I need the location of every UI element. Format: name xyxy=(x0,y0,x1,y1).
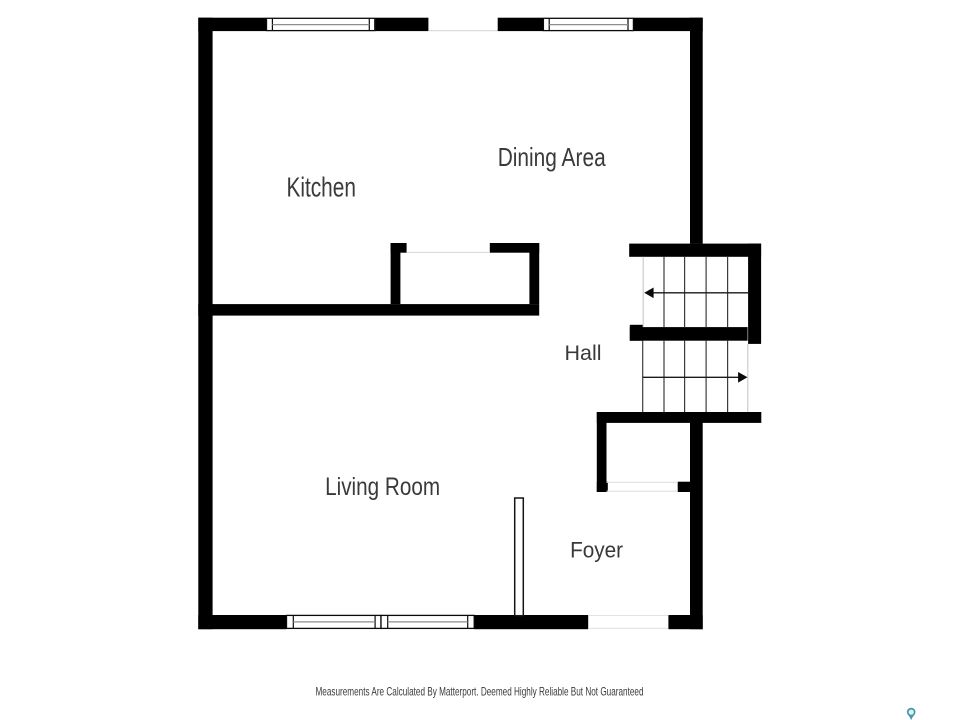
svg-text:Living Room: Living Room xyxy=(325,473,440,501)
svg-text:Measurements Are Calculated By: Measurements Are Calculated By Matterpor… xyxy=(316,684,644,698)
svg-text:Kitchen: Kitchen xyxy=(286,172,356,203)
svg-text:Dining Area: Dining Area xyxy=(498,142,606,172)
svg-text:Foyer: Foyer xyxy=(570,537,623,562)
svg-text:Hall: Hall xyxy=(565,342,602,365)
